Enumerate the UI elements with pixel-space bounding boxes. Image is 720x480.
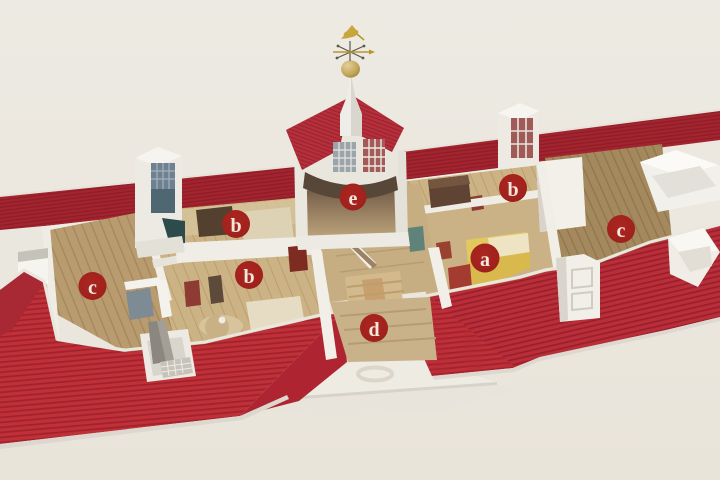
svg-text:c: c <box>88 277 97 299</box>
svg-text:e: e <box>349 188 358 210</box>
svg-text:d: d <box>368 319 379 341</box>
svg-text:b: b <box>243 266 254 288</box>
svg-text:b: b <box>507 179 518 201</box>
svg-text:a: a <box>480 249 490 271</box>
svg-text:b: b <box>230 215 241 237</box>
svg-text:c: c <box>617 220 626 242</box>
